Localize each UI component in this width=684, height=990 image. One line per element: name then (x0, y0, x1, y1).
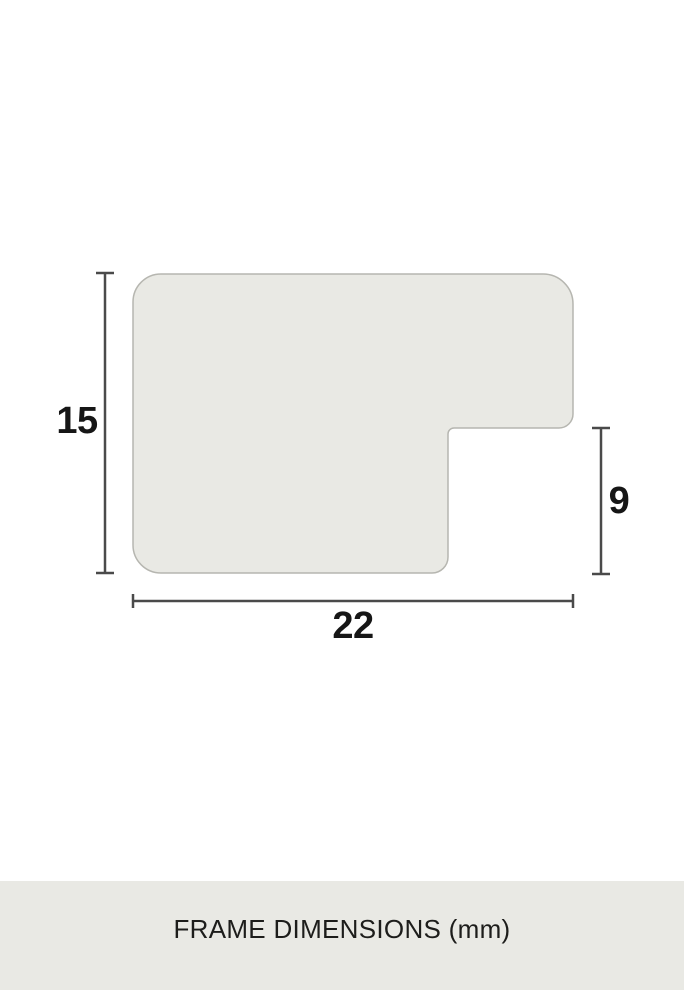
footer-caption: FRAME DIMENSIONS (mm) (173, 914, 510, 945)
rabbet-dimension-label: 9 (579, 480, 659, 522)
width-dimension-label: 22 (313, 605, 393, 647)
frame-profile-shape (133, 274, 573, 573)
height-dimension-label: 15 (37, 400, 117, 442)
footer-bar: FRAME DIMENSIONS (mm) (0, 881, 684, 990)
